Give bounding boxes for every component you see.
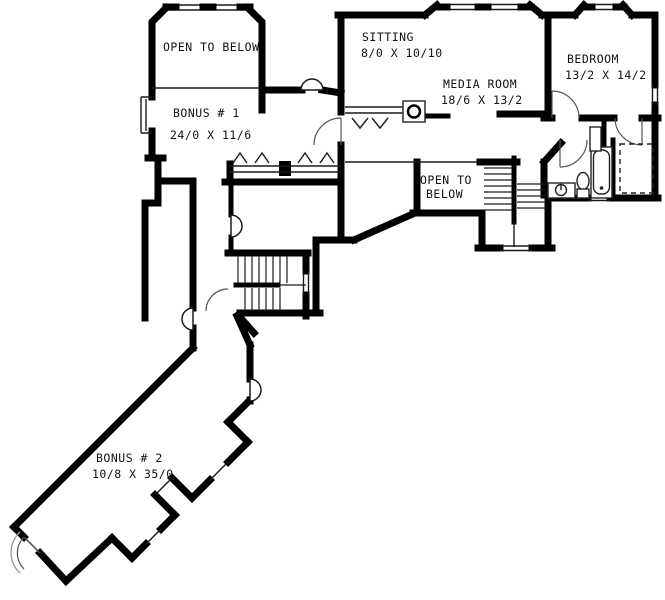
door-bedroom <box>552 91 579 118</box>
floor-plan-svg: OPEN TO BELOW BONUS # 1 24/0 X 11/6 SITT… <box>0 0 665 600</box>
floor-plan: OPEN TO BELOW BONUS # 1 24/0 X 11/6 SITT… <box>0 0 665 600</box>
door-bonus2-side <box>250 379 261 401</box>
column-icon <box>408 106 420 118</box>
tub-drain-icon <box>600 186 604 190</box>
label-media-room: MEDIA ROOM 18/6 X 13/2 <box>441 77 523 107</box>
pocket-door <box>590 127 601 151</box>
svg-text:8/0 X 10/10: 8/0 X 10/10 <box>361 46 443 60</box>
svg-text:OPEN TO: OPEN TO <box>420 173 472 187</box>
svg-text:SITTING: SITTING <box>362 30 414 44</box>
room-labels: OPEN TO BELOW BONUS # 1 24/0 X 11/6 SITT… <box>92 30 647 481</box>
svg-text:BONUS # 1: BONUS # 1 <box>173 106 240 120</box>
door-media-hall <box>314 118 341 145</box>
door-stairwell <box>206 289 228 311</box>
door-deck <box>301 79 323 90</box>
label-center-open-below: OPEN TO BELOW <box>420 173 472 201</box>
svg-text:18/6 X 13/2: 18/6 X 13/2 <box>441 93 523 107</box>
svg-text:BEDROOM: BEDROOM <box>567 52 619 66</box>
svg-text:MEDIA ROOM: MEDIA ROOM <box>443 77 517 91</box>
toilet-icon <box>577 173 589 190</box>
svg-text:10/8 X 35/0: 10/8 X 35/0 <box>92 467 174 481</box>
door-closet <box>615 118 642 145</box>
door-corridor <box>182 308 193 330</box>
door-bonus2-end-swing <box>11 532 20 573</box>
attic-chevrons <box>233 118 388 163</box>
label-bonus-1: BONUS # 1 24/0 X 11/6 <box>170 106 252 142</box>
svg-text:BELOW: BELOW <box>426 187 463 201</box>
toilet-tank <box>577 189 589 198</box>
door-vestibule <box>231 215 242 237</box>
label-bedroom: BEDROOM 13/2 X 14/2 <box>565 52 647 82</box>
walls <box>14 5 658 581</box>
svg-text:24/0 X 11/6: 24/0 X 11/6 <box>170 128 252 142</box>
svg-text:13/2 X 14/2: 13/2 X 14/2 <box>565 68 647 82</box>
svg-text:BONUS # 2: BONUS # 2 <box>96 451 163 465</box>
label-sitting: SITTING 8/0 X 10/10 <box>361 30 443 60</box>
label-bonus-2: BONUS # 2 10/8 X 35/0 <box>92 451 174 481</box>
label-tower-open-below: OPEN TO BELOW <box>163 40 260 54</box>
closet-shelves <box>620 144 653 193</box>
